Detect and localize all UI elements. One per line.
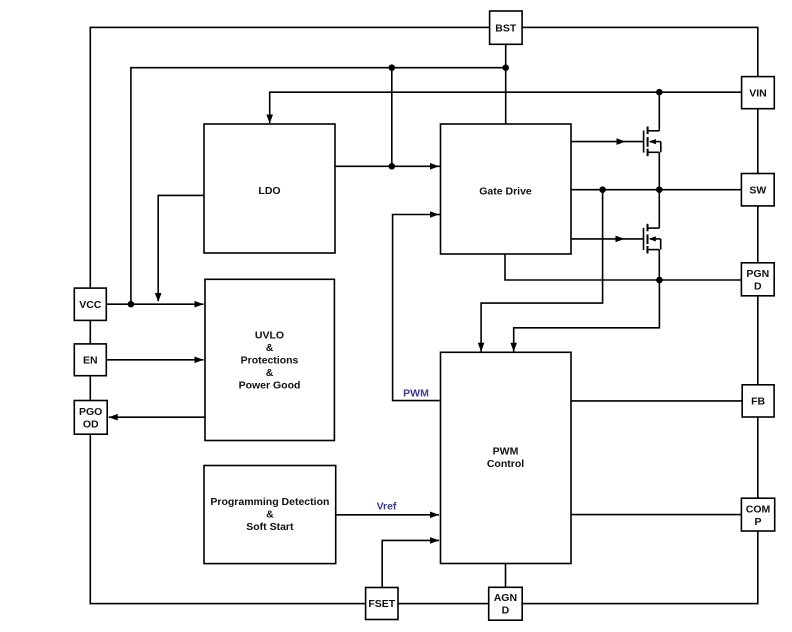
svg-text:OD: OD (83, 418, 99, 430)
svg-text:COM: COM (746, 503, 771, 515)
svg-text:SW: SW (749, 184, 766, 196)
svg-text:Vref: Vref (377, 500, 397, 512)
svg-text:D: D (502, 605, 510, 617)
svg-text:Control: Control (487, 458, 524, 470)
svg-text:Protections: Protections (241, 355, 299, 367)
svg-text:BST: BST (495, 22, 517, 34)
svg-text:&: & (266, 509, 274, 521)
svg-text:PWM: PWM (403, 387, 429, 399)
svg-text:PGN: PGN (746, 268, 769, 280)
svg-text:P: P (754, 516, 761, 528)
svg-text:VCC: VCC (79, 299, 102, 311)
svg-text:&: & (266, 342, 274, 354)
svg-text:&: & (266, 367, 274, 379)
svg-text:D: D (754, 280, 762, 292)
svg-text:UVLO: UVLO (255, 330, 284, 342)
svg-text:PGO: PGO (79, 406, 102, 418)
svg-text:EN: EN (83, 355, 98, 367)
svg-text:FSET: FSET (368, 598, 395, 610)
svg-text:LDO: LDO (258, 185, 280, 197)
svg-text:AGN: AGN (494, 592, 517, 604)
svg-text:VIN: VIN (749, 87, 767, 99)
svg-text:Power Good: Power Good (239, 380, 301, 392)
svg-text:PWM: PWM (493, 446, 519, 458)
svg-text:FB: FB (751, 396, 765, 408)
svg-text:Gate Drive: Gate Drive (479, 186, 532, 198)
svg-text:Soft Start: Soft Start (246, 521, 294, 533)
svg-text:Programming Detection: Programming Detection (210, 496, 329, 508)
